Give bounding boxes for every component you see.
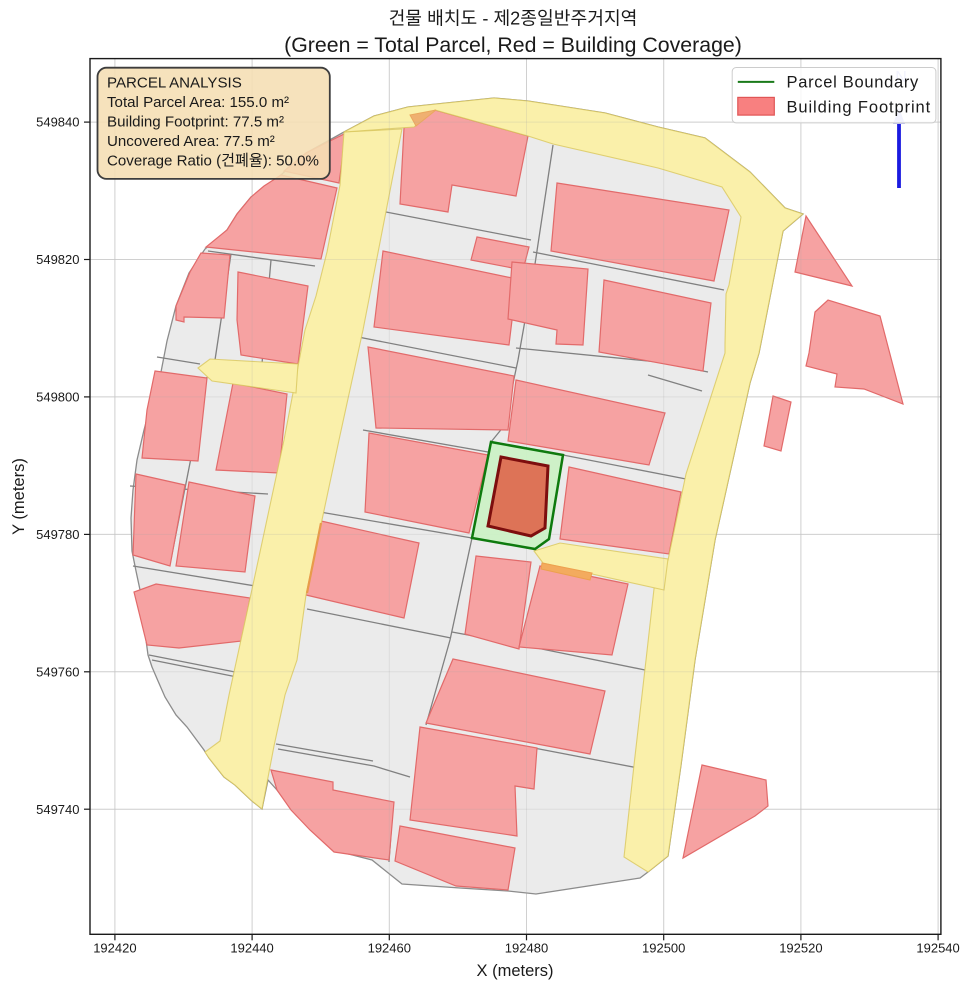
svg-text:549800: 549800 bbox=[36, 390, 79, 405]
svg-text:Y (meters): Y (meters) bbox=[10, 458, 28, 535]
svg-text:192460: 192460 bbox=[368, 940, 411, 955]
svg-text:Uncovered Area: 77.5 m²: Uncovered Area: 77.5 m² bbox=[107, 133, 275, 150]
svg-text:549780: 549780 bbox=[36, 527, 79, 542]
svg-text:192420: 192420 bbox=[93, 940, 136, 955]
svg-text:PARCEL ANALYSIS: PARCEL ANALYSIS bbox=[107, 75, 242, 92]
svg-text:549740: 549740 bbox=[36, 802, 79, 817]
svg-text:Parcel Boundary: Parcel Boundary bbox=[787, 73, 920, 91]
svg-text:549760: 549760 bbox=[36, 664, 79, 679]
svg-text:Building Footprint: 77.5 m²: Building Footprint: 77.5 m² bbox=[107, 113, 284, 130]
svg-text:192540: 192540 bbox=[916, 940, 959, 955]
svg-text:192520: 192520 bbox=[779, 940, 822, 955]
svg-text:X (meters): X (meters) bbox=[476, 962, 553, 980]
svg-text:549820: 549820 bbox=[36, 252, 79, 267]
svg-text:Coverage Ratio (건폐율): 50.0%: Coverage Ratio (건폐율): 50.0% bbox=[107, 152, 319, 169]
svg-text:192440: 192440 bbox=[230, 940, 273, 955]
svg-text:192500: 192500 bbox=[642, 940, 685, 955]
svg-text:(Green = Total Parcel, Red = B: (Green = Total Parcel, Red = Building Co… bbox=[284, 33, 742, 57]
svg-text:Total Parcel Area: 155.0 m²: Total Parcel Area: 155.0 m² bbox=[107, 94, 289, 111]
svg-text:549840: 549840 bbox=[36, 115, 79, 130]
svg-text:Building Footprint: Building Footprint bbox=[787, 99, 932, 117]
svg-text:192480: 192480 bbox=[505, 940, 548, 955]
svg-text:건물 배치도 - 제2종일반주거지역: 건물 배치도 - 제2종일반주거지역 bbox=[389, 9, 638, 29]
